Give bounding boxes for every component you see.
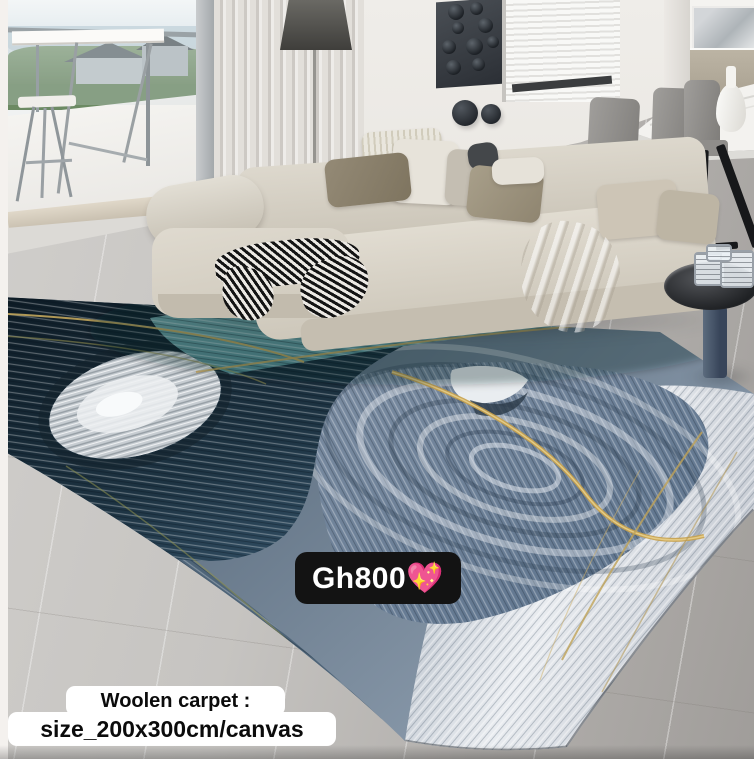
price-tag: Gh800💖 xyxy=(295,552,461,604)
caption-text-2: size_200x300cm/canvas xyxy=(40,716,303,743)
price-text: Gh800💖 xyxy=(312,561,444,596)
caption-line-2: size_200x300cm/canvas xyxy=(8,712,336,746)
product-photo: Gh800💖 Woolen carpet : size_200x300cm/ca… xyxy=(0,0,754,759)
pillow-beige xyxy=(656,189,721,245)
glass-decor xyxy=(706,244,732,262)
rug xyxy=(0,0,754,759)
caption-text-1: Woolen carpet : xyxy=(101,690,251,713)
pillow-white xyxy=(491,157,544,186)
vase-neck xyxy=(726,66,736,88)
side-table-stem xyxy=(703,306,727,378)
photo-left-border xyxy=(0,0,8,759)
photo-bottom-shadow xyxy=(0,745,754,759)
pillow-taupe xyxy=(324,152,413,209)
